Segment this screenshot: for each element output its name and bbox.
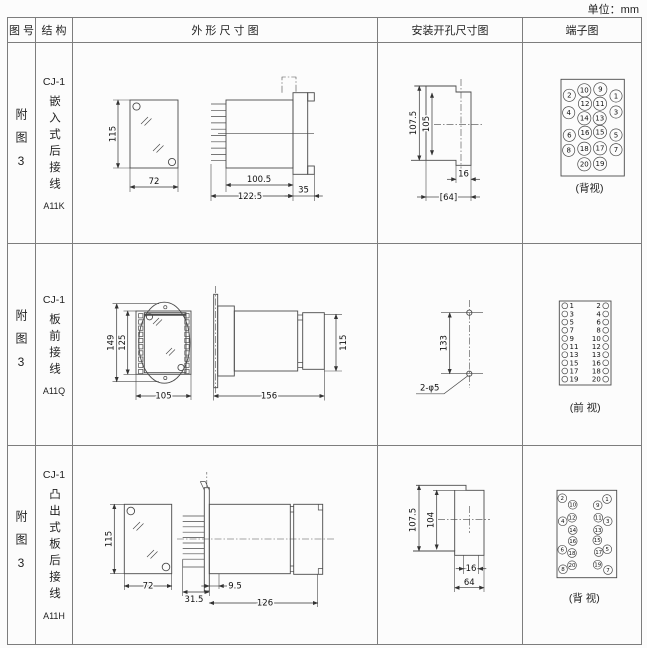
terminal-num: 12 bbox=[592, 343, 601, 351]
dim-front: 35 bbox=[285, 174, 323, 201]
dim-depth: 156 bbox=[214, 369, 325, 401]
terminal-num: 17 bbox=[595, 550, 602, 556]
dim-tab-width: 16 bbox=[456, 555, 487, 574]
terminal-num: 1 bbox=[570, 302, 574, 310]
dim-cutout-width: [64] bbox=[417, 160, 480, 203]
front-view bbox=[124, 504, 171, 573]
terminal-num: 9 bbox=[570, 335, 574, 343]
terminal-num: 12 bbox=[581, 100, 590, 108]
header-mounting: 安装开孔尺寸图 bbox=[378, 18, 523, 43]
terminal-num: 19 bbox=[570, 376, 579, 384]
terminal-num: 2 bbox=[567, 92, 571, 100]
terminal-num: 20 bbox=[592, 376, 601, 384]
dim-height: 115 bbox=[104, 504, 124, 573]
hatch-mark bbox=[133, 522, 144, 531]
dim-label: [64] bbox=[440, 193, 457, 203]
hole-size-label: 2-φ5 bbox=[420, 384, 440, 394]
terminal-num: 5 bbox=[614, 131, 618, 139]
row2-figure-cell: 附图3 bbox=[8, 244, 36, 446]
terminal-num: 18 bbox=[569, 551, 576, 557]
header-terminal: 端子图 bbox=[523, 18, 641, 43]
terminal-num: 3 bbox=[570, 310, 574, 318]
model-label: CJ-1 bbox=[43, 469, 65, 481]
handle-stub bbox=[282, 77, 296, 93]
dim-label: 156 bbox=[261, 392, 277, 402]
row1-mounting-cell: 107.5 105 16 [64] bbox=[378, 43, 523, 244]
side-view bbox=[214, 286, 325, 397]
terminal-num: 19 bbox=[594, 563, 601, 569]
terminal-num: 6 bbox=[567, 132, 572, 140]
terminal-num: 16 bbox=[581, 129, 590, 137]
dim-label: 64 bbox=[464, 578, 475, 588]
dim-inner-height: 105 bbox=[422, 93, 432, 155]
dim-width: 72 bbox=[124, 574, 171, 592]
dim-label: 31.5 bbox=[185, 595, 204, 605]
figure-label: 附图3 bbox=[13, 309, 30, 380]
mounting-drawing-a11q: 133 2-φ5 bbox=[378, 244, 522, 445]
terminal-grid: 2 1 10 9 4 12 11 3 14 13 16 15 6 18 17 5 bbox=[558, 494, 613, 575]
terminal-num: 13 bbox=[595, 115, 604, 123]
header-figure: 图 号 bbox=[8, 18, 36, 43]
row2-mounting-cell: 133 2-φ5 bbox=[378, 244, 523, 446]
cutout-shape bbox=[413, 485, 490, 555]
model-label: CJ-1 bbox=[43, 294, 65, 306]
row1-outline-cell: 115 72 bbox=[73, 43, 378, 244]
front-view bbox=[130, 100, 178, 168]
terminal-num: 10 bbox=[580, 87, 589, 95]
unit-label: 单位：mm bbox=[588, 1, 639, 17]
dim-outer-height: 107.5 bbox=[409, 485, 419, 551]
terminal-num: 8 bbox=[561, 567, 565, 573]
terminal-num: 18 bbox=[580, 145, 589, 153]
terminal-num: 15 bbox=[570, 359, 579, 367]
hatch-mark bbox=[166, 348, 175, 356]
dim-inner-height: 125 bbox=[118, 311, 136, 374]
row3-structure-cell: CJ-1 凸出式板后接线 A11H bbox=[36, 446, 73, 644]
terminal-num: 19 bbox=[596, 160, 605, 168]
dim-label: 115 bbox=[104, 531, 114, 547]
terminal-num: 5 bbox=[570, 319, 574, 327]
row3-terminal-cell: 2 1 10 9 4 12 11 3 14 13 16 15 6 18 17 5 bbox=[523, 446, 641, 644]
terminal-diagram-a11q: 1 2 3 4 5 6 7 8 9 10 11 12 13 13 15 16 1 bbox=[523, 244, 641, 445]
terminal-num: 1 bbox=[614, 92, 618, 100]
structure-label: 板前接线 bbox=[46, 313, 62, 379]
terminal-num: 11 bbox=[596, 100, 605, 108]
outline-drawing-a11h: 115 72 bbox=[73, 446, 377, 642]
dim-width: 72 bbox=[130, 168, 178, 192]
terminal-num: 5 bbox=[606, 547, 610, 553]
row2-structure-cell: CJ-1 板前接线 A11Q bbox=[36, 244, 73, 446]
row2-outline-cell: 149 125 105 bbox=[73, 244, 378, 446]
terminal-num: 14 bbox=[580, 115, 589, 123]
terminal-num: 11 bbox=[570, 343, 579, 351]
terminal-num: 4 bbox=[561, 519, 565, 525]
row1-terminal-cell: 2 10 9 1 4 12 11 3 14 13 6 16 15 5 8 18 bbox=[523, 43, 641, 244]
row3-figure-cell: 附图3 bbox=[8, 446, 36, 644]
terminal-num: 10 bbox=[592, 335, 601, 343]
dim-depth: 126 bbox=[209, 574, 317, 608]
dim-label: 133 bbox=[439, 335, 449, 351]
datasheet-page: 单位：mm 图 号 结 构 外 形 尺 寸 图 安装开孔尺寸图 端子图 附图3 … bbox=[0, 0, 647, 648]
terminal-num: 1 bbox=[605, 497, 609, 503]
terminal-num: 7 bbox=[570, 327, 574, 335]
terminal-num: 15 bbox=[594, 538, 601, 544]
terminal-num: 12 bbox=[569, 516, 576, 522]
header-structure: 结 构 bbox=[36, 18, 73, 43]
terminal-num: 9 bbox=[598, 86, 602, 94]
mounting-drawing-a11k: 107.5 105 16 [64] bbox=[378, 43, 522, 243]
hole-callout: 2-φ5 bbox=[416, 376, 468, 394]
row1-figure-cell: 附图3 bbox=[8, 43, 36, 244]
dim-label: 72 bbox=[143, 582, 154, 592]
dim-side-height: 115 bbox=[324, 314, 349, 371]
row3-mounting-cell: 107.5 104 16 64 bbox=[378, 446, 523, 644]
front-view bbox=[136, 302, 191, 383]
terminal-num: 17 bbox=[596, 145, 605, 153]
hatch-mark bbox=[153, 144, 164, 153]
dim-height: 115 bbox=[109, 100, 131, 168]
hatch-mark bbox=[153, 318, 162, 326]
flange-hook bbox=[200, 482, 209, 491]
terminal-diagram-a11h: 2 1 10 9 4 12 11 3 14 13 16 15 6 18 17 5 bbox=[523, 446, 641, 642]
code-label: A11H bbox=[43, 611, 65, 621]
dim-label: 16 bbox=[466, 564, 477, 574]
figure-label: 附图3 bbox=[13, 108, 30, 179]
side-view bbox=[211, 77, 314, 174]
dim-label: 107.5 bbox=[409, 111, 419, 135]
dim-label: 107.5 bbox=[409, 508, 419, 532]
code-label: A11K bbox=[43, 201, 64, 211]
terminal-num: 10 bbox=[569, 503, 576, 509]
terminal-grid: 2 10 9 1 4 12 11 3 14 13 6 16 15 5 8 18 bbox=[563, 83, 623, 171]
terminal-num: 20 bbox=[569, 563, 576, 569]
terminal-num: 13 bbox=[570, 351, 579, 359]
terminal-num: 2 bbox=[596, 302, 600, 310]
terminal-pins bbox=[183, 516, 205, 559]
dim-outer-height: 107.5 bbox=[409, 86, 420, 160]
dim-label: 122.5 bbox=[238, 192, 262, 202]
terminal-grid: 1 2 3 4 5 6 7 8 9 10 11 12 13 13 15 16 1 bbox=[562, 302, 609, 383]
side-view bbox=[177, 472, 336, 591]
dim-label: 105 bbox=[422, 116, 432, 132]
terminal-num: 16 bbox=[592, 359, 601, 367]
dim-hole-spacing: 133 bbox=[439, 313, 449, 374]
terminal-num: 11 bbox=[595, 516, 602, 522]
dim-label: 35 bbox=[298, 186, 309, 196]
terminal-num: 4 bbox=[566, 109, 571, 117]
dim-gap: 9.5 bbox=[201, 574, 241, 592]
dim-label: 126 bbox=[257, 599, 273, 609]
terminal-num: 14 bbox=[569, 528, 576, 534]
dim-label: 100.5 bbox=[247, 175, 271, 185]
hatch-mark bbox=[147, 550, 158, 559]
terminal-diagram-a11k: 2 10 9 1 4 12 11 3 14 13 6 16 15 5 8 18 bbox=[523, 43, 641, 243]
terminal-num: 8 bbox=[566, 147, 570, 155]
row1-structure-cell: CJ-1 嵌入式后接线 A11K bbox=[36, 43, 73, 244]
terminal-num: 16 bbox=[569, 539, 576, 545]
terminal-num: 17 bbox=[570, 367, 579, 375]
hatch-mark bbox=[141, 117, 152, 126]
terminal-num: 20 bbox=[580, 161, 589, 169]
terminal-num: 13 bbox=[592, 351, 601, 359]
terminal-num: 18 bbox=[592, 367, 601, 375]
view-label: (背 视) bbox=[569, 592, 600, 605]
dim-label: 115 bbox=[339, 335, 349, 351]
terminal-num: 2 bbox=[561, 496, 565, 502]
view-label: (前 视) bbox=[570, 401, 601, 414]
terminal-pins bbox=[211, 104, 226, 161]
dim-label: 72 bbox=[149, 177, 160, 187]
row3-outline-cell: 115 72 bbox=[73, 446, 378, 644]
terminal-num: 8 bbox=[596, 327, 600, 335]
dim-label: 125 bbox=[118, 335, 128, 351]
figure-label: 附图3 bbox=[13, 510, 30, 581]
terminal-num: 3 bbox=[614, 108, 618, 116]
model-label: CJ-1 bbox=[43, 76, 65, 88]
structure-label: 嵌入式后接线 bbox=[46, 95, 62, 194]
header-outline: 外 形 尺 寸 图 bbox=[73, 18, 378, 43]
terminal-num: 15 bbox=[596, 128, 605, 136]
row2-terminal-cell: 1 2 3 4 5 6 7 8 9 10 11 12 13 13 15 16 1 bbox=[523, 244, 641, 446]
dim-tab-width: 16 bbox=[447, 165, 480, 183]
outline-drawing-a11k: 115 72 bbox=[73, 43, 377, 243]
terminal-num: 4 bbox=[596, 310, 601, 318]
view-label: (背视) bbox=[576, 182, 604, 195]
terminal-num: 7 bbox=[614, 146, 618, 154]
terminal-num: 6 bbox=[561, 548, 565, 554]
dim-label: 115 bbox=[109, 126, 119, 142]
dim-label: 16 bbox=[458, 170, 469, 180]
terminal-num: 13 bbox=[595, 528, 602, 534]
terminal-num: 3 bbox=[606, 519, 610, 525]
dim-label: 149 bbox=[107, 335, 117, 351]
dim-label: 104 bbox=[427, 512, 437, 528]
mounting-drawing-a11h: 107.5 104 16 64 bbox=[378, 446, 522, 642]
code-label: A11Q bbox=[43, 386, 65, 396]
dim-label: 105 bbox=[155, 392, 171, 402]
dim-inner-height: 104 bbox=[427, 490, 437, 549]
outline-drawing-a11q: 149 125 105 bbox=[73, 244, 377, 445]
terminal-num: 7 bbox=[606, 568, 610, 574]
terminal-num: 6 bbox=[596, 319, 601, 327]
dim-label: 9.5 bbox=[228, 582, 242, 592]
structure-label: 凸出式板后接线 bbox=[46, 488, 62, 604]
spec-table: 图 号 结 构 外 形 尺 寸 图 安装开孔尺寸图 端子图 附图3 CJ-1 嵌… bbox=[7, 17, 642, 645]
terminal-num: 9 bbox=[596, 503, 600, 509]
